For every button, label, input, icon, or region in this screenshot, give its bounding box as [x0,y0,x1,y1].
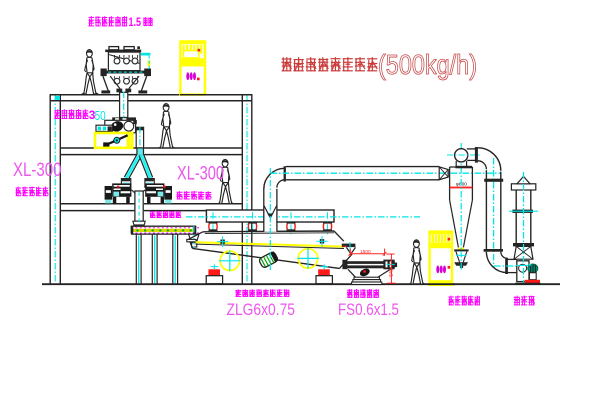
svg-text:(500kg/h): (500kg/h) [378,49,477,80]
svg-text:50: 50 [95,108,106,123]
svg-text:XL-300: XL-300 [13,159,62,181]
svg-text:540: 540 [389,268,395,277]
svg-text:ZLG6x0.75: ZLG6x0.75 [227,300,296,319]
svg-text:1.5: 1.5 [129,15,142,29]
svg-text:FS0.6x1.5: FS0.6x1.5 [338,300,399,319]
svg-text:XL-300: XL-300 [177,163,224,185]
svg-text:1500: 1500 [360,249,371,255]
